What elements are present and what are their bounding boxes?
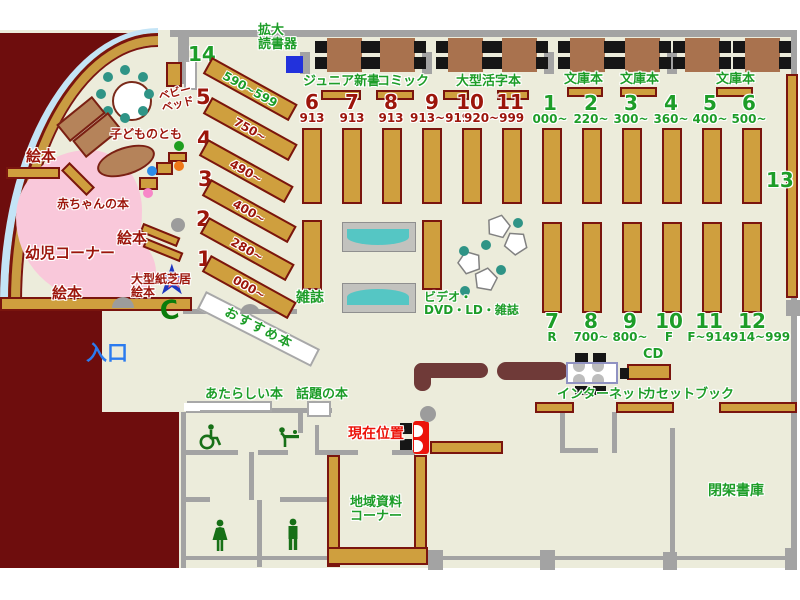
bookshelf bbox=[662, 222, 682, 313]
chair bbox=[613, 41, 625, 53]
shelf-column: 2220~ bbox=[569, 93, 613, 126]
bookshelf bbox=[742, 222, 762, 313]
wall bbox=[786, 300, 800, 316]
shelf-column: 10F bbox=[647, 311, 691, 344]
reading-table bbox=[570, 38, 605, 72]
bookshelf bbox=[342, 128, 362, 204]
local-materials-label: 地域資料 コーナー bbox=[350, 496, 402, 524]
shelf-column: 7913 bbox=[330, 92, 374, 125]
bookshelf bbox=[622, 128, 642, 204]
cushion bbox=[143, 188, 153, 198]
library-floor-map: おすすめ本 ★ ★ C 拡大 読書器 ジュニア bbox=[0, 0, 800, 600]
chair bbox=[779, 57, 791, 69]
shelf-column: 12914~999 bbox=[730, 311, 774, 344]
bookshelf bbox=[542, 222, 562, 313]
bookshelf bbox=[414, 455, 427, 552]
counter bbox=[497, 362, 568, 380]
bookshelf bbox=[616, 402, 674, 413]
bookshelf bbox=[542, 128, 562, 204]
bookshelf bbox=[582, 128, 602, 204]
chair bbox=[414, 57, 426, 69]
wall bbox=[670, 428, 675, 570]
wall bbox=[181, 412, 186, 568]
shelf-column: 7R bbox=[530, 311, 574, 344]
shelf-column: 5400~ bbox=[688, 93, 732, 126]
comic-label: コミック bbox=[377, 75, 429, 89]
current-position-marker bbox=[413, 421, 429, 454]
shelf-column: 6913 bbox=[290, 92, 334, 125]
cassette-books-label: カセットブック bbox=[643, 388, 734, 402]
shelf-column: 6500~ bbox=[727, 93, 771, 126]
chair bbox=[368, 41, 380, 53]
pillar bbox=[171, 218, 185, 232]
wall bbox=[280, 497, 332, 502]
wall bbox=[392, 450, 415, 455]
shelf-13-label: 13 bbox=[766, 170, 794, 192]
chair bbox=[315, 41, 327, 53]
chair bbox=[613, 57, 625, 69]
infant-corner-label: 幼児コーナー bbox=[25, 245, 115, 261]
magazine-rack bbox=[342, 222, 416, 252]
chair bbox=[536, 41, 548, 53]
bookshelf bbox=[719, 402, 797, 413]
wall bbox=[540, 550, 555, 570]
bookshelf bbox=[502, 128, 522, 204]
reading-table bbox=[327, 38, 362, 72]
shelf-column: 11F~914 bbox=[687, 311, 731, 344]
bunko-label: 文庫本 bbox=[564, 73, 603, 87]
reading-table bbox=[448, 38, 483, 72]
man-icon bbox=[284, 518, 302, 551]
wall bbox=[612, 412, 617, 453]
chair bbox=[414, 41, 426, 53]
cushion bbox=[174, 161, 184, 171]
large-kamishibai-label: 大型紙芝居 絵本 bbox=[131, 273, 191, 299]
picture-books-label: 絵本 bbox=[26, 148, 56, 164]
baby-change-icon bbox=[276, 426, 302, 450]
current-position-label: 現在位置 bbox=[348, 427, 404, 442]
phone-icon: C bbox=[158, 295, 181, 327]
chair bbox=[490, 41, 502, 53]
chair bbox=[719, 57, 731, 69]
bunko-label: 文庫本 bbox=[716, 73, 755, 87]
reading-table bbox=[745, 38, 780, 72]
magazine-rack bbox=[342, 283, 416, 313]
new-books-label: あたらしい本 bbox=[205, 388, 283, 402]
wall bbox=[186, 497, 210, 502]
wall bbox=[249, 452, 254, 500]
chair bbox=[659, 41, 671, 53]
cushion bbox=[174, 141, 184, 151]
chair bbox=[673, 41, 685, 53]
reading-table bbox=[685, 38, 720, 72]
chair bbox=[558, 57, 570, 69]
entrance-label: 入口 bbox=[86, 342, 128, 365]
shelf-column: 11 bbox=[488, 92, 532, 112]
chair bbox=[436, 57, 448, 69]
counter bbox=[414, 363, 431, 391]
bookshelf bbox=[622, 222, 642, 313]
shelf-column: 3300~ bbox=[609, 93, 653, 126]
wall bbox=[258, 450, 288, 455]
bookshelf bbox=[462, 128, 482, 204]
bookshelf bbox=[627, 364, 671, 380]
door-gap bbox=[184, 403, 200, 411]
wall bbox=[183, 556, 795, 560]
chair bbox=[719, 41, 731, 53]
chair bbox=[779, 41, 791, 53]
chair bbox=[575, 353, 588, 362]
bookshelf bbox=[582, 222, 602, 313]
closed-stacks-label: 閉架書庫 bbox=[708, 484, 764, 499]
reading-table bbox=[502, 38, 537, 72]
bookshelf bbox=[742, 128, 762, 204]
woman-icon bbox=[211, 519, 229, 552]
chair bbox=[315, 57, 327, 69]
picture-books-label: 絵本 bbox=[52, 285, 82, 301]
wall bbox=[560, 412, 565, 453]
chair bbox=[673, 57, 685, 69]
chair bbox=[593, 353, 606, 362]
bookshelf bbox=[422, 220, 442, 290]
shelf-column: 9800~ bbox=[608, 311, 652, 344]
chair bbox=[436, 41, 448, 53]
wall bbox=[428, 550, 443, 570]
bookshelf bbox=[430, 441, 503, 454]
reading-table bbox=[380, 38, 415, 72]
cd-label: CD bbox=[643, 348, 663, 362]
bookshelf bbox=[702, 128, 722, 204]
internet-table bbox=[566, 362, 618, 384]
reading-table bbox=[625, 38, 660, 72]
internet-label: インターネット bbox=[557, 388, 648, 402]
shelf-column: 8700~ bbox=[569, 311, 613, 344]
wall bbox=[560, 448, 598, 453]
junior-shinsho-label: ジュニア新書 bbox=[303, 75, 380, 89]
wall bbox=[785, 548, 797, 570]
magnifier-device bbox=[286, 56, 303, 73]
step-display bbox=[156, 162, 173, 175]
chair bbox=[368, 57, 380, 69]
bookshelf bbox=[422, 128, 442, 204]
baby-books-label: 赤ちゃんの本 bbox=[57, 198, 129, 211]
magazines-label: 雑誌 bbox=[296, 291, 324, 306]
cushion bbox=[147, 166, 157, 176]
topical-books-shelf bbox=[307, 401, 331, 417]
video-label: ビデオ・ DVD・LD・雑誌 bbox=[424, 291, 519, 317]
chair bbox=[558, 41, 570, 53]
chair bbox=[659, 57, 671, 69]
bookshelf bbox=[702, 222, 722, 313]
bookshelf bbox=[302, 128, 322, 204]
wheelchair-icon bbox=[196, 424, 224, 451]
shelf-column: 4360~ bbox=[649, 93, 693, 126]
wall bbox=[315, 425, 319, 453]
chair bbox=[733, 57, 745, 69]
shelf-column: 10920~999 bbox=[448, 92, 492, 125]
shelf-column: 8913 bbox=[369, 92, 413, 125]
chair bbox=[733, 41, 745, 53]
pillar bbox=[420, 406, 436, 422]
bookshelf bbox=[327, 547, 428, 565]
topical-books-label: 話題の本 bbox=[296, 388, 348, 402]
entrance-block bbox=[102, 412, 179, 568]
bookshelf bbox=[6, 167, 60, 179]
chair bbox=[620, 368, 629, 379]
baby-bed bbox=[166, 62, 182, 87]
bookshelf bbox=[382, 128, 402, 204]
large-print-label: 大型活字本 bbox=[456, 75, 521, 89]
bookshelf bbox=[535, 402, 574, 413]
shelf-column: 1000~ bbox=[528, 93, 572, 126]
bunko-label: 文庫本 bbox=[620, 73, 659, 87]
chair bbox=[536, 57, 548, 69]
chair bbox=[490, 57, 502, 69]
kodomo-no-tomo-label: 子どものとも bbox=[110, 128, 182, 141]
picture-books-label: 絵本 bbox=[117, 230, 147, 246]
bookshelf bbox=[302, 220, 322, 290]
magnifier-label: 拡大 読書器 bbox=[258, 24, 297, 52]
bookshelf bbox=[662, 128, 682, 204]
